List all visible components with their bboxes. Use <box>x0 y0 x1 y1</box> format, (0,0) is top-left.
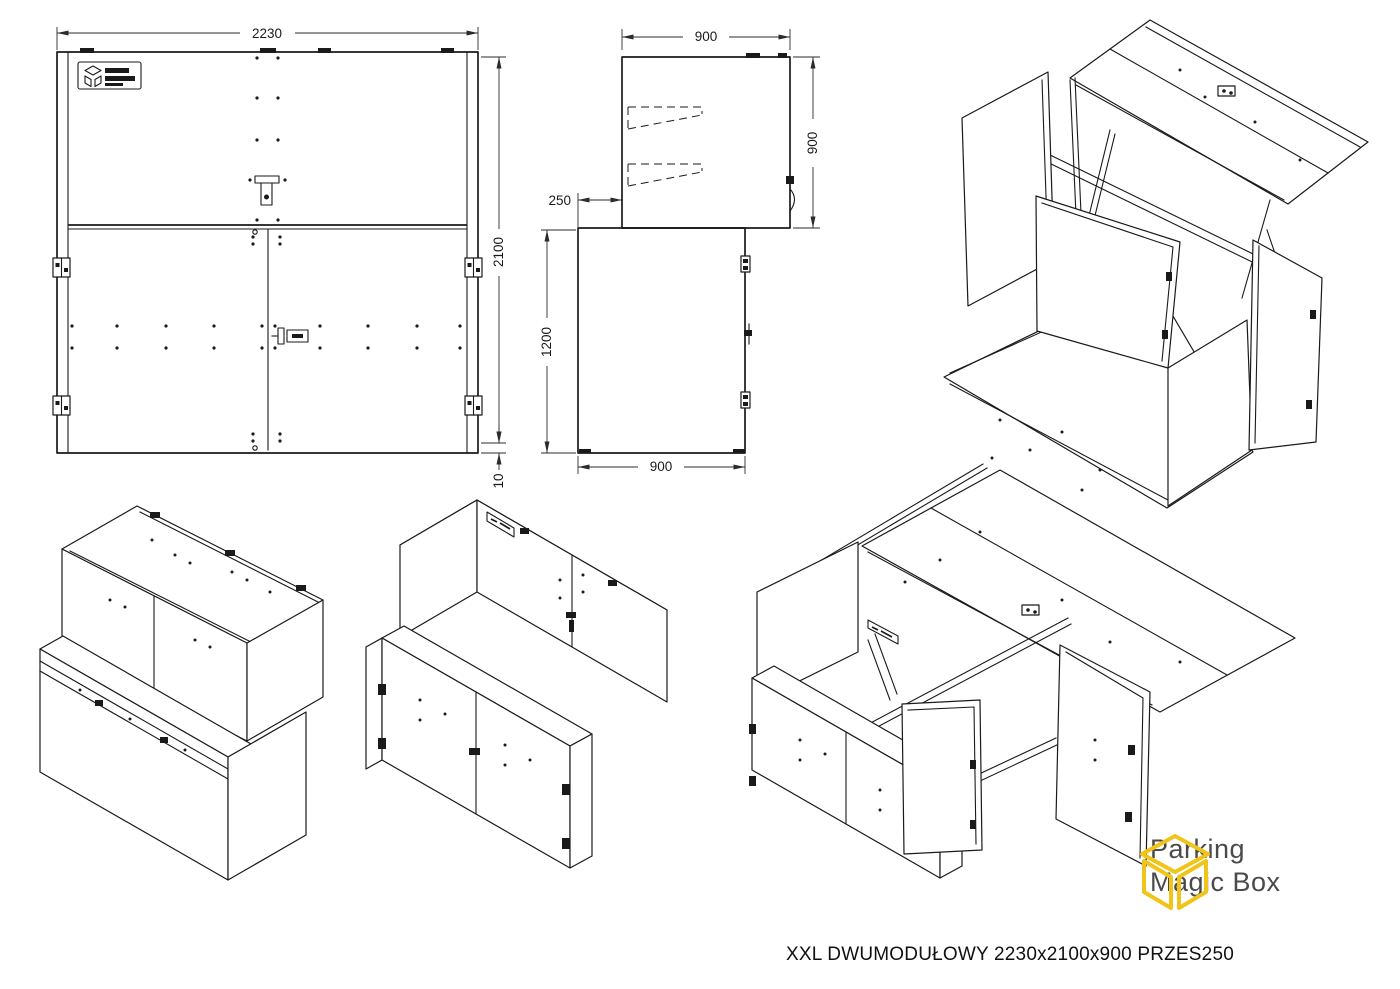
iso1-lid <box>1070 20 1368 204</box>
iso3-lower-right-face <box>570 734 592 868</box>
iso-view-open-front <box>749 464 1295 878</box>
side-outline <box>578 228 745 453</box>
front-lower-lock <box>272 328 308 344</box>
iso4-lid-lock <box>1022 605 1039 615</box>
badge-cube-icon <box>85 66 101 75</box>
iso4-gas-strut <box>868 640 890 700</box>
iso3-upper-lock <box>566 612 576 618</box>
plan-offset-dim-label: 250 <box>548 193 571 208</box>
side-height-dimension: 1200 <box>539 230 576 453</box>
iso3-upper-left-face <box>400 500 477 637</box>
technical-drawing-sheet: 2230 2100 10 <box>0 0 1400 989</box>
side-view: 1200 900 <box>539 228 752 474</box>
plan-view: 900 900 250 <box>548 29 820 228</box>
front-view: 2230 2100 10 <box>53 26 506 489</box>
iso3-lower-lock <box>469 748 480 755</box>
iso1-lid-lock <box>1218 86 1235 96</box>
side-height-dim-label: 1200 <box>539 327 554 357</box>
iso4-logo-badge <box>868 620 898 644</box>
front-base-dim-label: 10 <box>491 473 506 488</box>
plan-width-dim-label: 900 <box>695 29 718 44</box>
front-rivets <box>70 56 461 450</box>
plan-depth-dimension: 900 <box>793 57 820 228</box>
brand-cube-icon <box>1136 830 1214 916</box>
front-width-dim-label: 2230 <box>252 26 282 41</box>
plan-depth-dim-label: 900 <box>805 132 820 155</box>
iso-view-open-top <box>944 20 1368 508</box>
plan-offset-dimension: 250 <box>548 193 622 227</box>
iso-view-closed-front <box>366 500 667 868</box>
plan-outline <box>622 57 790 228</box>
iso-view-closed-rear <box>40 506 323 880</box>
front-base-dimension: 10 <box>481 426 506 489</box>
front-upper-lock <box>255 176 279 205</box>
iso1-right-door <box>1249 240 1322 450</box>
front-width-dimension: 2230 <box>57 26 478 50</box>
iso3-lower-left-face <box>366 638 382 769</box>
brand-logo: Parking Magic Box <box>1136 830 1281 899</box>
drawing-title: XXL DWUMODUŁOWY 2230x2100x900 PRZES250 <box>750 944 1270 966</box>
front-logo-badge <box>78 62 141 89</box>
plan-handle <box>786 176 794 184</box>
plan-width-dimension: 900 <box>622 29 790 50</box>
front-height-dimension: 2100 <box>481 57 506 443</box>
side-depth-dim-label: 900 <box>650 459 673 474</box>
side-depth-dimension: 900 <box>578 456 745 474</box>
front-height-dim-label: 2100 <box>491 237 506 267</box>
plan-hidden-arms <box>628 107 702 186</box>
iso4-hanging-door <box>902 700 982 854</box>
